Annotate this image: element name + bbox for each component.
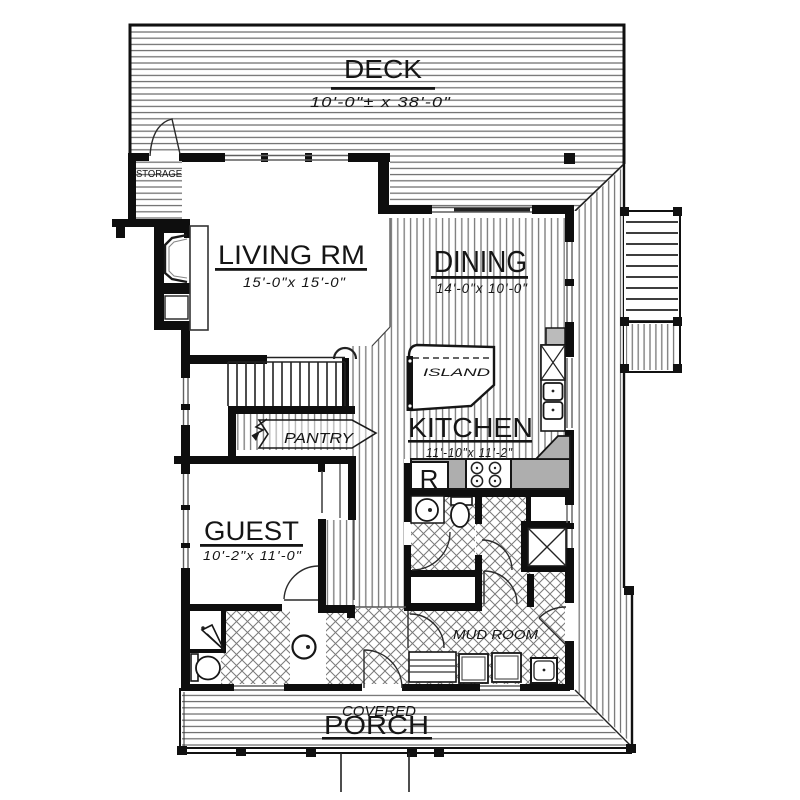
svg-text:GUEST: GUEST — [204, 516, 299, 546]
svg-text:PORCH: PORCH — [324, 710, 429, 740]
svg-text:ISLAND: ISLAND — [423, 367, 490, 379]
svg-text:LIVING RM: LIVING RM — [218, 240, 365, 270]
svg-text:15'-0"x 15'-0": 15'-0"x 15'-0" — [243, 275, 346, 290]
svg-text:DECK: DECK — [344, 54, 423, 84]
svg-text:STORAGE: STORAGE — [136, 169, 182, 180]
svg-text:14'-0"x 10'-0": 14'-0"x 10'-0" — [436, 281, 528, 296]
svg-text:11'-10"x 11'-2": 11'-10"x 11'-2" — [426, 446, 513, 460]
svg-text:R: R — [420, 464, 439, 494]
svg-text:PANTRY: PANTRY — [284, 430, 354, 447]
svg-text:10'-0"± x 38'-0": 10'-0"± x 38'-0" — [310, 95, 451, 111]
svg-text:DINING: DINING — [434, 244, 527, 279]
svg-text:MUD ROOM: MUD ROOM — [453, 628, 539, 642]
svg-text:10'-2"x 11'-0": 10'-2"x 11'-0" — [203, 548, 302, 563]
svg-text:KITCHEN: KITCHEN — [408, 412, 533, 443]
